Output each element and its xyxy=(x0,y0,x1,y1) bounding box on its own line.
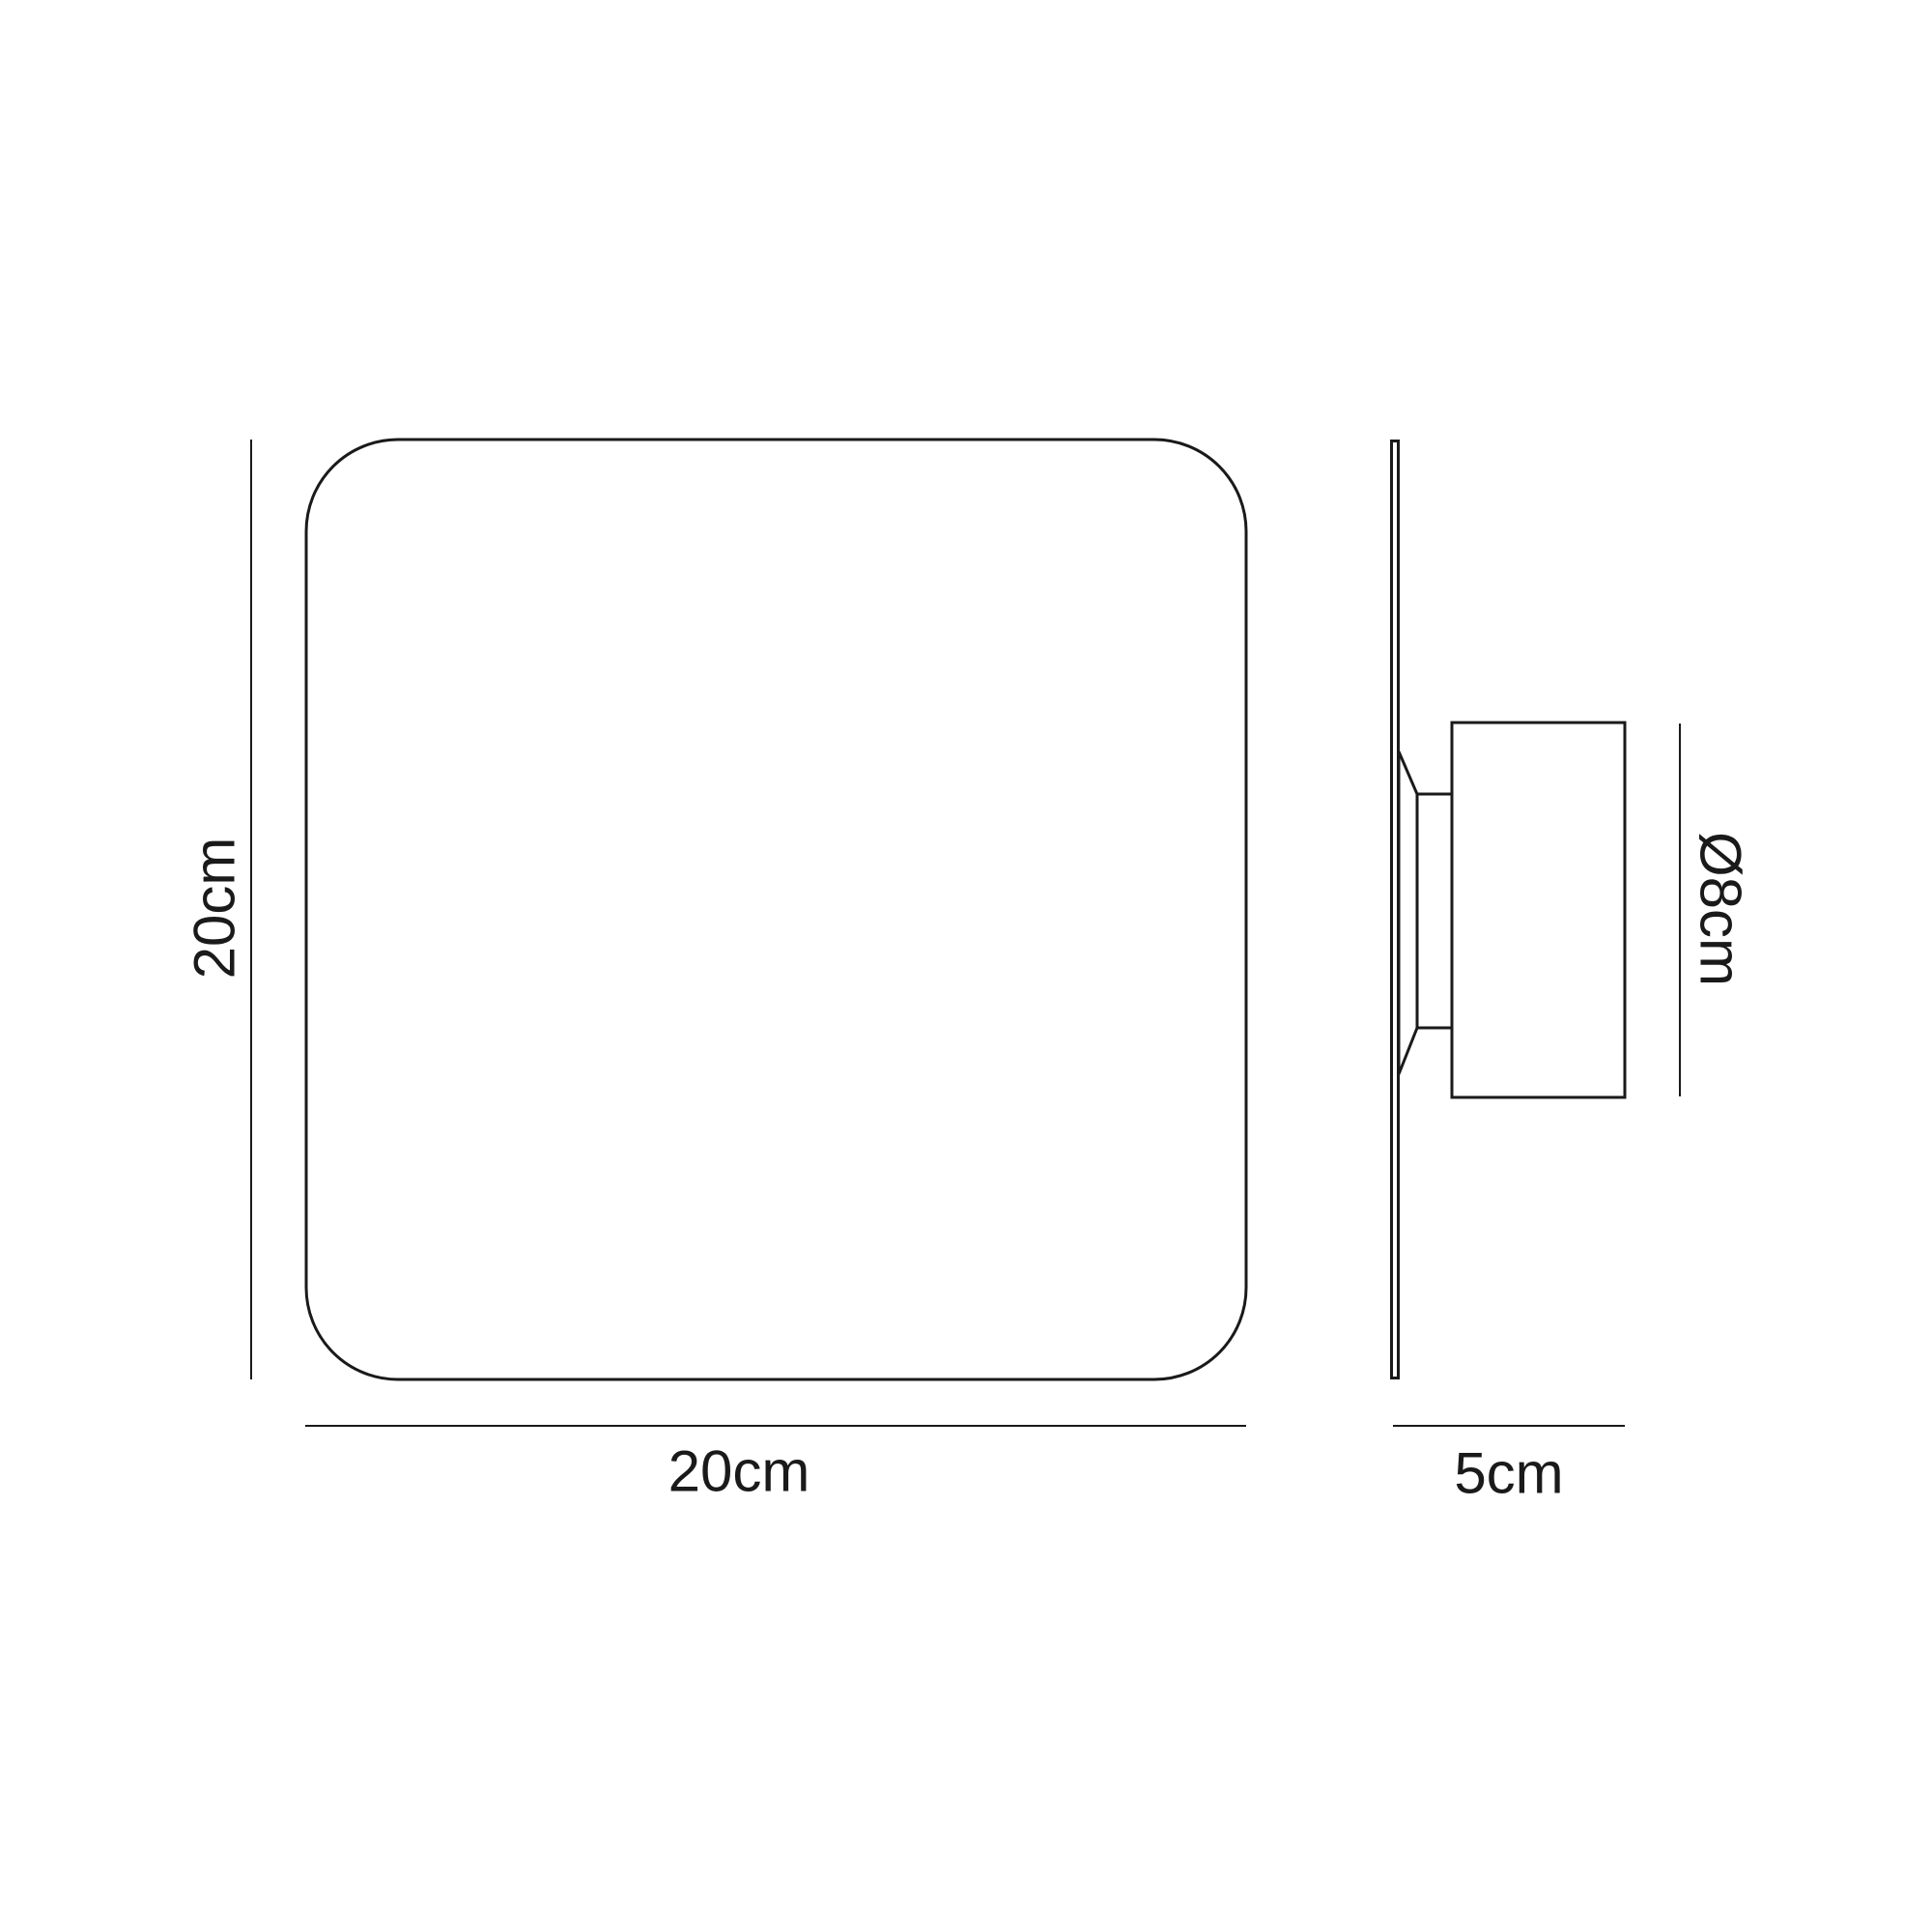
width-dimension-label: 20cm xyxy=(668,1439,810,1504)
depth-dimension-label: 5cm xyxy=(1454,1441,1563,1506)
front-panel-outline xyxy=(306,440,1246,1379)
diameter-dimension-label: Ø8cm xyxy=(1689,832,1753,986)
height-dimension-label: 20cm xyxy=(183,838,247,980)
wall-plate-side xyxy=(1392,441,1399,1378)
mounting-neck-side xyxy=(1417,794,1452,1028)
lamp-head-cylinder-side xyxy=(1452,723,1625,1097)
dimension-diagram: 20cm 20cm Ø8cm 5cm xyxy=(0,0,1932,1932)
diagram-canvas: 20cm 20cm Ø8cm 5cm xyxy=(0,0,1932,1932)
mounting-cone-side xyxy=(1399,752,1417,1074)
